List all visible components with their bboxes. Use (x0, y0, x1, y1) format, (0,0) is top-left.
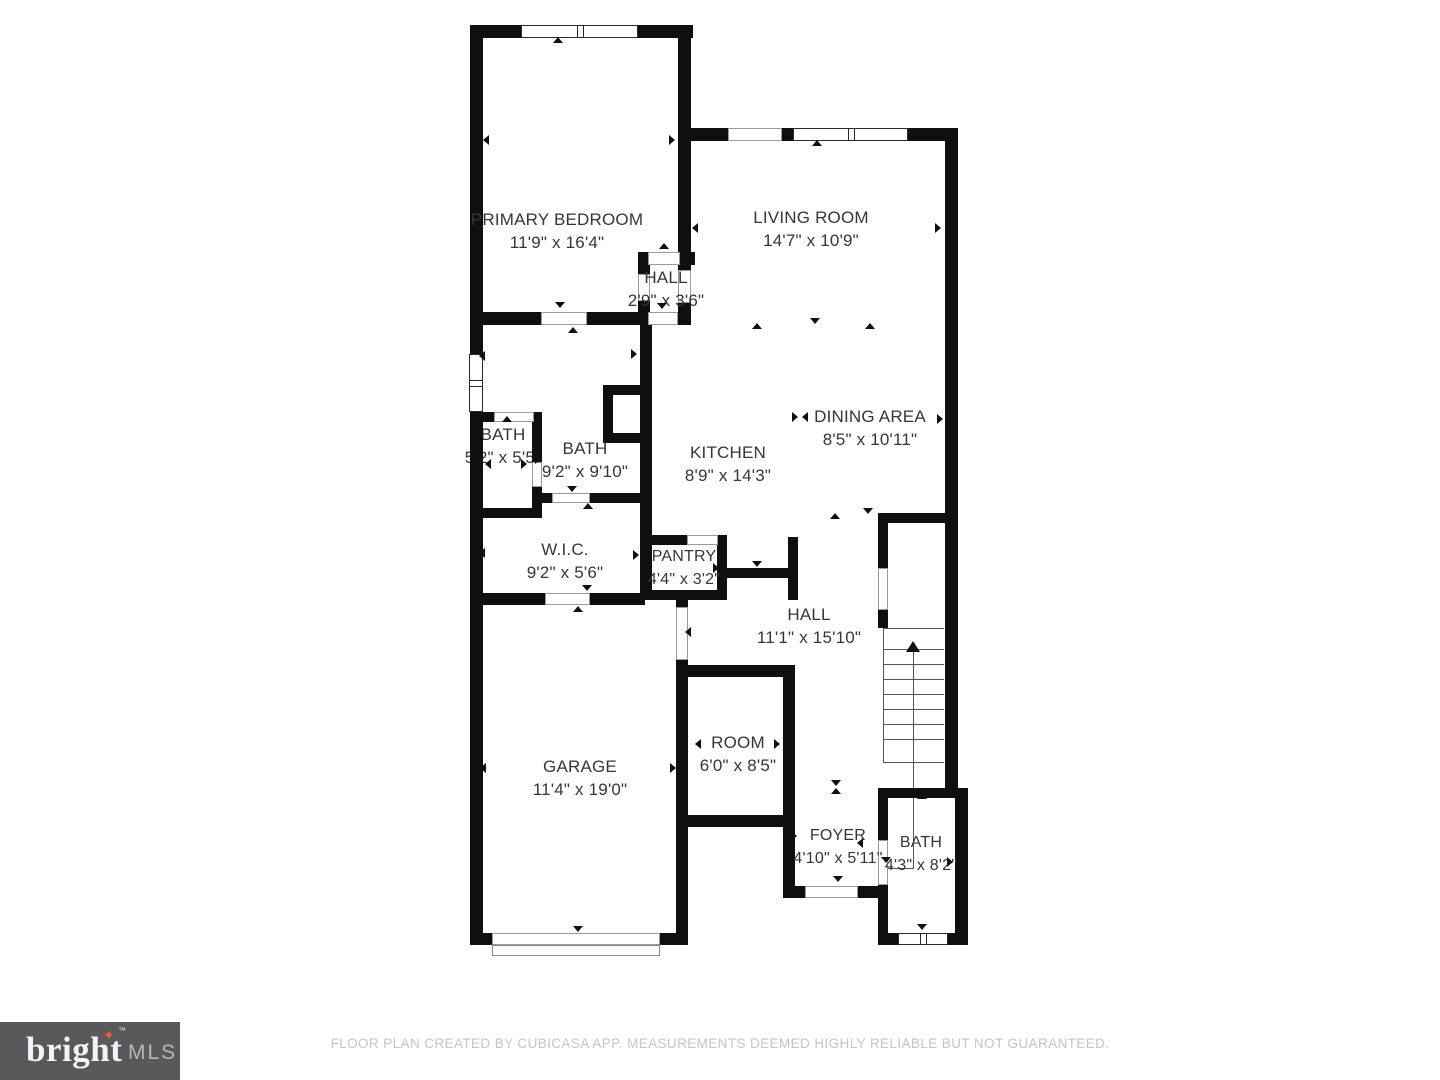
garage-door-panel (492, 945, 660, 956)
door-opening (541, 312, 587, 325)
door-tick (752, 561, 762, 567)
door-tick (502, 508, 512, 514)
door-tick (573, 606, 583, 612)
door-tick (802, 412, 808, 422)
window (898, 933, 948, 945)
door-tick (917, 924, 927, 930)
door-tick (692, 223, 698, 233)
room-dims: 8'5" x 10'11" (814, 428, 926, 451)
room-name: BATH (885, 831, 957, 854)
door-tick (810, 318, 820, 324)
room-name: FOYER (793, 824, 882, 847)
room-label-hall-lower: HALL 11'1" x 15'10" (757, 603, 861, 649)
door-tick (774, 739, 780, 749)
room-name: DINING AREA (814, 405, 926, 428)
wall (783, 665, 795, 827)
door-tick (555, 302, 565, 308)
door-tick (685, 627, 691, 637)
door-tick (553, 37, 563, 43)
door-tick (695, 739, 701, 749)
room-label-wic: W.I.C. 9'2" x 5'6" (527, 538, 604, 584)
window (469, 354, 483, 412)
room-dims: 11'1" x 15'10" (757, 626, 861, 649)
room-label-room: ROOM 6'0" x 8'5" (700, 731, 777, 777)
door-tick (502, 416, 512, 422)
brightmls-logo: bright ✦ ™ MLS (0, 1022, 180, 1080)
door-tick (669, 135, 675, 145)
stair-step (884, 679, 944, 680)
room-name: W.I.C. (527, 538, 604, 561)
door-tick (573, 926, 583, 932)
door-tick (792, 412, 798, 422)
door-tick (881, 857, 891, 863)
door-opening (532, 462, 542, 487)
room-label-kitchen: KITCHEN 8'9" x 14'3" (685, 441, 771, 487)
door-tick (633, 550, 639, 560)
door-opening (492, 933, 660, 945)
window-mullion (848, 129, 855, 140)
door-tick (568, 327, 578, 333)
room-label-pantry: PANTRY 4'4" x 3'2" (648, 545, 720, 591)
room-name: LIVING ROOM (753, 206, 869, 229)
wall (878, 610, 888, 628)
logo-star-icon: ✦ (103, 1027, 115, 1044)
door-tick (483, 135, 489, 145)
room-dims: 9'2" x 9'10" (542, 460, 628, 483)
room-name: PANTRY (648, 545, 720, 568)
door-tick (947, 857, 953, 867)
stair-step (884, 739, 944, 740)
wall (878, 513, 888, 568)
logo-mls-text: MLS (128, 1041, 177, 1065)
door-tick (485, 459, 491, 469)
door-tick (917, 793, 927, 799)
window-mullion (577, 26, 584, 37)
wall (788, 537, 798, 600)
door-tick (937, 414, 943, 424)
stair-step (884, 724, 944, 725)
room-name: HALL (757, 603, 861, 626)
room-label-foyer: FOYER 4'10" x 5'11" (793, 824, 882, 870)
door-opening (552, 493, 590, 503)
room-dims: 11'4" x 19'0" (533, 778, 628, 801)
door-opening (687, 535, 718, 545)
logo-trademark: ™ (118, 1026, 126, 1035)
door-opening (494, 412, 534, 422)
door-tick (752, 323, 762, 329)
room-name: KITCHEN (685, 441, 771, 464)
door-tick (863, 508, 873, 514)
room-dims: 6'0" x 8'5" (700, 754, 777, 777)
room-dims: 4'4" x 3'2" (648, 568, 720, 591)
door-opening (648, 252, 680, 265)
room-dims: 4'10" x 5'11" (793, 847, 882, 870)
door-tick (812, 140, 822, 146)
door-opening (545, 593, 590, 605)
room-label-living-room: LIVING ROOM 14'7" x 10'9" (753, 206, 869, 252)
door-tick (791, 831, 797, 841)
door-tick (830, 513, 840, 519)
room-label-bath-lower: BATH 4'3" x 8'2" (885, 831, 957, 877)
door-tick (657, 303, 667, 309)
door-tick (833, 876, 843, 882)
wall (727, 568, 790, 578)
door-tick (670, 763, 676, 773)
room-label-garage: GARAGE 11'4" x 19'0" (533, 755, 628, 801)
door-tick (643, 563, 649, 573)
wall (945, 128, 958, 788)
disclaimer-text: FLOOR PLAN CREATED BY CUBICASA APP. MEAS… (0, 1036, 1440, 1051)
room-name: BATH (542, 437, 628, 460)
door-tick (645, 412, 651, 422)
room-dims: 11'9" x 16'4" (471, 231, 643, 254)
stair-up-arrow-icon (906, 641, 920, 652)
door-tick (713, 563, 719, 573)
door-tick (865, 323, 875, 329)
room-label-dining-area: DINING AREA 8'5" x 10'11" (814, 405, 926, 451)
room-name: PRIMARY BEDROOM (471, 208, 643, 231)
window-mullion (470, 380, 482, 387)
door-tick (479, 548, 485, 558)
room-dims: 14'7" x 10'9" (753, 229, 869, 252)
door-tick (480, 763, 486, 773)
wall (676, 665, 795, 677)
wall (678, 25, 691, 270)
door-tick (857, 838, 863, 848)
door-tick (479, 351, 485, 361)
room-name: ROOM (700, 731, 777, 754)
floorplan-page: PRIMARY BEDROOM 11'9" x 16'4" LIVING ROO… (0, 0, 1440, 1080)
door-tick (831, 780, 841, 786)
door-tick (521, 459, 527, 469)
door-opening (648, 312, 678, 325)
stair-step (884, 664, 944, 665)
wall (470, 25, 483, 945)
door-opening (728, 128, 782, 141)
stair-step (884, 694, 944, 695)
window-mullion (920, 934, 927, 944)
wall (878, 513, 958, 523)
stair-step (884, 709, 944, 710)
window (793, 128, 908, 141)
room-label-bath-mid: BATH 9'2" x 9'10" (542, 437, 628, 483)
door-tick (935, 223, 941, 233)
room-name: GARAGE (533, 755, 628, 778)
wall (676, 815, 795, 827)
room-dims: 9'2" x 5'6" (527, 561, 604, 584)
room-dims: 8'9" x 14'3" (685, 464, 771, 487)
door-tick (631, 349, 637, 359)
room-name: HALL (628, 266, 705, 289)
door-tick (677, 600, 687, 606)
door-tick (535, 454, 541, 464)
room-label-primary-bedroom: PRIMARY BEDROOM 11'9" x 16'4" (471, 208, 643, 254)
door-opening (805, 886, 858, 898)
door-tick (831, 788, 841, 794)
door-tick (583, 503, 593, 509)
door-tick (659, 243, 669, 249)
window (521, 25, 638, 38)
door-tick (582, 585, 592, 591)
door-tick (567, 486, 577, 492)
door-opening (878, 568, 888, 610)
door-tick (665, 537, 675, 543)
